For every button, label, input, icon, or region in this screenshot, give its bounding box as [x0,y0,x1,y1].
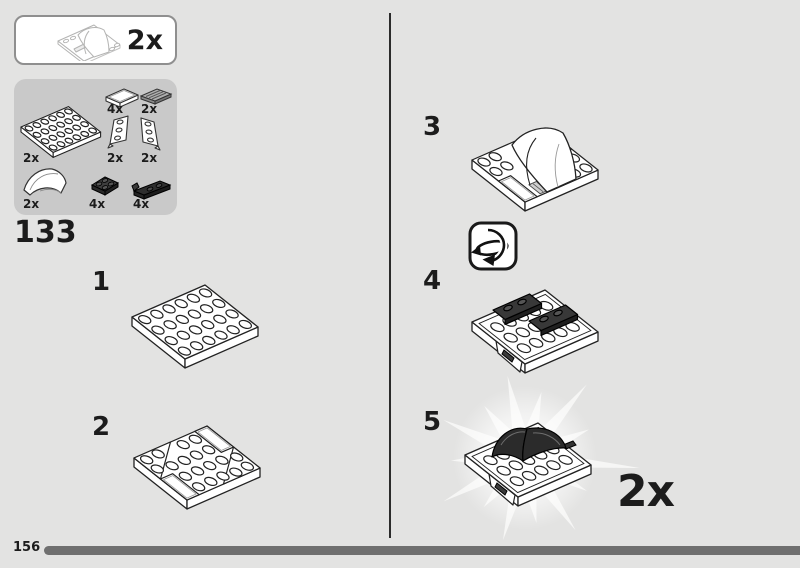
step-5-illustration [455,405,605,520]
part-qty: 2x [141,102,157,116]
step-1-illustration [126,278,262,372]
step-number-4: 4 [423,268,441,294]
part-qty: 2x [23,197,39,211]
progress-bar [44,546,800,555]
callout-quantity: 2x [127,27,163,54]
part-qty: 4x [89,197,105,211]
parts-box: 4x 2x 2x 2x [14,79,177,215]
part-qty: 2x [141,151,157,165]
part-thumb-wedge-left [104,114,132,150]
callout-box: 2x [14,15,177,65]
rotate-model-icon [468,221,518,271]
step-group-number: 133 [14,218,77,248]
part-thumb-curved-slope [20,164,72,198]
part-qty: 2x [23,151,39,165]
step-5-quantity: 2x [617,470,674,514]
column-divider [389,13,391,538]
page-number: 156 [13,541,40,554]
step-2-illustration [128,414,264,514]
part-thumb-plate-2x2-dark [88,171,122,198]
part-thumb-wedge-right [138,116,164,152]
step-number-2: 2 [92,414,110,440]
part-qty: 2x [107,151,123,165]
part-qty: 4x [133,197,149,211]
step-number-3: 3 [423,114,441,140]
step-3-illustration [466,112,602,212]
step-number-1: 1 [92,269,110,295]
